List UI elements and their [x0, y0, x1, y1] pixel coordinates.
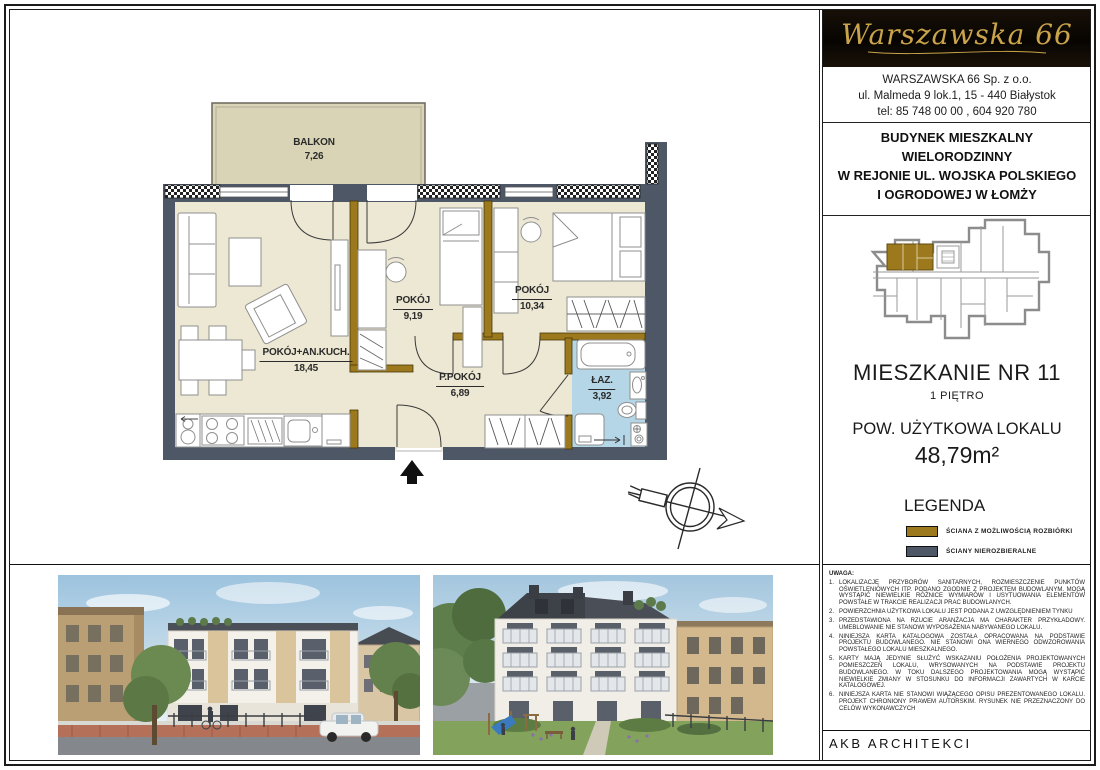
developer-logo: Warszawska 66	[823, 10, 1091, 67]
project-title-line: WIELORODZINNY	[823, 148, 1091, 167]
room-label-lazienka: ŁAZ. 3,92	[588, 375, 615, 403]
room-label-balkon: BALKON 7,26	[293, 137, 335, 163]
fixed-wall-swatch-icon	[906, 546, 938, 557]
apartment-number: MIESZKANIE NR 11	[823, 360, 1091, 386]
legend-title: LEGENDA	[904, 496, 1091, 516]
usable-area-value: 48,79m²	[823, 442, 1091, 469]
notes-title: UWAGA:	[829, 571, 1085, 578]
floor-plan: BALKON 7,26 POKÓJ+AN.KUCH. 18,45 POKÓJ 9…	[10, 10, 819, 564]
note-item: 6. NINIEJSZA KARTA NIE STANOWI WIĄŻĄCEGO…	[829, 692, 1085, 712]
title-block-panel: Warszawska 66 WARSZAWSKA 66 Sp. z o.o. u…	[819, 10, 1091, 760]
north-arrow-icon	[627, 468, 744, 549]
room-label-pokoj-kuchnia: POKÓJ+AN.KUCH. 18,45	[260, 347, 353, 375]
key-plan	[823, 206, 1091, 356]
room-label-pokoj-919: POKÓJ 9,19	[393, 295, 433, 323]
apartment-floor: 1 PIĘTRO	[823, 390, 1091, 402]
company-address-block: WARSZAWSKA 66 Sp. z o.o. ul. Malmeda 9 l…	[823, 67, 1091, 123]
architecture-studio: AKB ARCHITEKCI	[823, 730, 1091, 760]
note-item: 4. NINIEJSZA KARTA KATALOGOWA ZOSTAŁA OP…	[829, 634, 1085, 654]
key-plan-drawing	[857, 208, 1057, 354]
note-item: 5. KARTY MAJĄ JEDYNIE SŁUŻYĆ WSKAZANIU P…	[829, 656, 1085, 690]
floor-plan-drawing	[10, 10, 819, 564]
legend-item-fixed-wall: ŚCIANY NIEROZBIERALNE	[906, 546, 1091, 557]
legend: LEGENDA ŚCIANA Z MOŻLIWOŚCIĄ ROZBIÓRKI Ś…	[904, 496, 1091, 566]
note-item: 2. POWIERZCHNIA UŻYTKOWA LOKALU JEST POD…	[829, 609, 1085, 616]
project-title-line: BUDYNEK MIESZKALNY	[823, 129, 1091, 148]
project-title-line: I OGRODOWEJ W ŁOMŻY	[823, 186, 1091, 205]
company-name: WARSZAWSKA 66 Sp. z o.o.	[823, 72, 1091, 88]
note-item: 1. LOKALIZACJĘ PRZYBORÓW SANITARNYCH, RO…	[829, 580, 1085, 607]
project-title-block: BUDYNEK MIESZKALNY WIELORODZINNY W REJON…	[823, 118, 1091, 216]
removable-wall-swatch-icon	[906, 526, 938, 537]
room-label-przedpokoj: P.POKÓJ 6,89	[436, 372, 484, 400]
note-item: 3. PRZEDSTAWIONA NA RZUCIE ARANŻACJA MA …	[829, 618, 1085, 632]
legend-item-removable-wall: ŚCIANA Z MOŻLIWOŚCIĄ ROZBIÓRKI	[906, 526, 1091, 537]
key-plan-highlighted-unit	[887, 244, 933, 270]
render-street-view	[58, 575, 420, 755]
room-label-pokoj-1034: POKÓJ 10,34	[512, 285, 552, 313]
usable-area-label: POW. UŻYTKOWA LOKALU	[823, 420, 1091, 439]
notes-block: UWAGA: 1. LOKALIZACJĘ PRZYBORÓW SANITARN…	[823, 564, 1091, 735]
usable-area-block: POW. UŻYTKOWA LOKALU 48,79m²	[823, 420, 1091, 469]
logo-script-text: Warszawska 66	[841, 21, 1073, 49]
company-street: ul. Malmeda 9 lok.1, 15 - 440 Białystok	[823, 88, 1091, 104]
logo-flourish-icon	[862, 49, 1052, 56]
project-title-line: W REJONIE UL. WOJSKA POLSKIEGO	[823, 167, 1091, 186]
entrance-arrow-icon	[400, 460, 424, 484]
renders-band	[10, 564, 819, 761]
apartment-id-block: MIESZKANIE NR 11 1 PIĘTRO	[823, 360, 1091, 402]
render-courtyard-view	[433, 575, 773, 755]
catalog-card-page: BALKON 7,26 POKÓJ+AN.KUCH. 18,45 POKÓJ 9…	[0, 0, 1100, 770]
